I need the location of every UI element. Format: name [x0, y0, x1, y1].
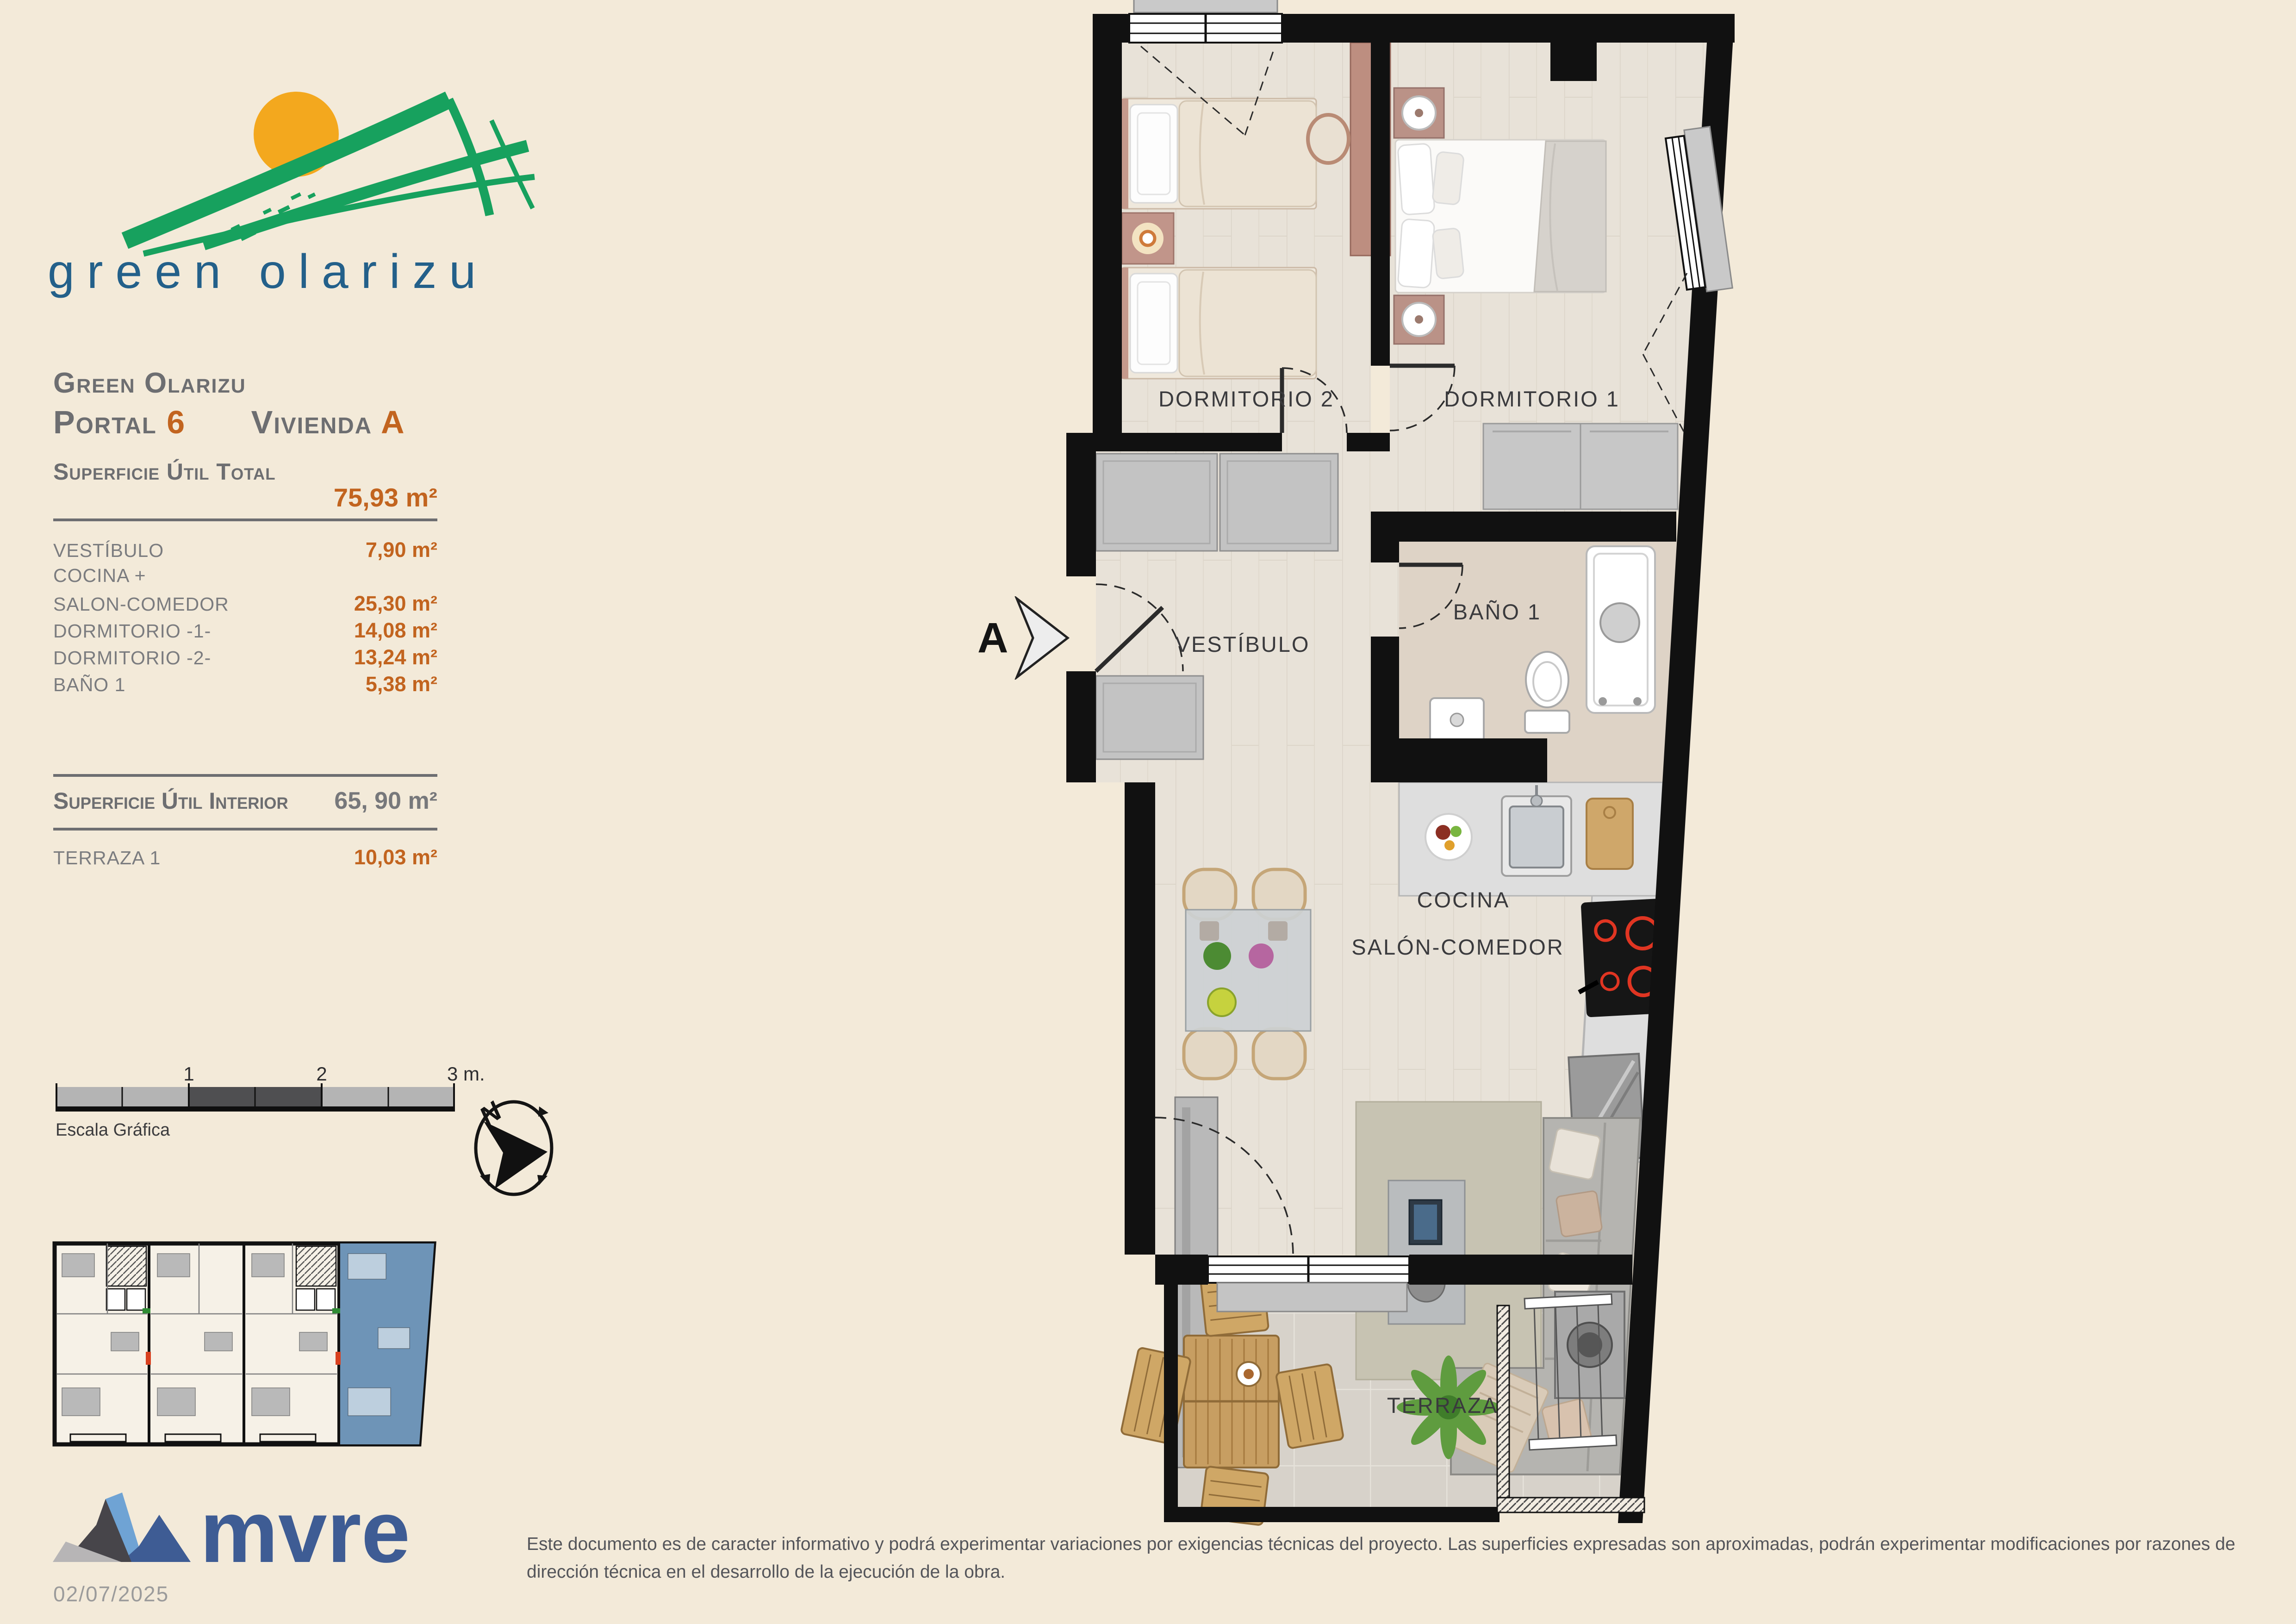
- kitchen-sink: [1502, 785, 1571, 876]
- bed-single-2: [1122, 268, 1316, 379]
- cutting-board: [1587, 799, 1633, 869]
- divider-rule: [53, 518, 437, 521]
- area-row-label: VESTÍBULO: [53, 540, 164, 562]
- area-row: DORMITORIO -1-14,08 m²: [53, 618, 437, 645]
- interior-surface-value: 65, 90 m²: [334, 787, 437, 815]
- area-row-value: 14,08 m²: [354, 618, 437, 643]
- door-mark-icon: [146, 1352, 151, 1365]
- interior-surface-label: Superficie Útil Interior: [53, 787, 288, 814]
- vivienda-label: Vivienda: [251, 404, 372, 440]
- nightstand: [1394, 295, 1444, 344]
- area-row: SALON-COMEDOR25,30 m²: [53, 592, 437, 618]
- hatched-wall: [1497, 1305, 1509, 1509]
- meter-mark-icon: [332, 1308, 340, 1313]
- section-marker-a: A: [977, 596, 1070, 680]
- area-row-label: DORMITORIO -2-: [53, 647, 211, 669]
- portal-vivienda-line: Portal 6 Vivienda A: [53, 404, 405, 441]
- nightstand: [1122, 213, 1174, 264]
- divider-rule: [53, 774, 437, 777]
- scale-tick-label-3: 3 m.: [447, 1065, 485, 1085]
- scale-bar-caption: Escala Gráfica: [56, 1120, 170, 1140]
- vivienda-letter: A: [381, 404, 405, 440]
- area-row-value: 13,24 m²: [354, 645, 437, 669]
- mini-building-plan: [52, 1235, 443, 1450]
- terrace-surface-value: 10,03 m²: [354, 845, 437, 869]
- area-table: VESTÍBULO7,90 m² COCINA + SALON-COMEDOR2…: [53, 538, 437, 699]
- meter-mark-icon: [143, 1308, 150, 1313]
- room-label-dormitorio-1: DORMITORIO 1: [1444, 387, 1620, 411]
- bathroom-sink: [1430, 698, 1484, 744]
- area-row-value: 7,90 m²: [366, 538, 437, 562]
- compass: N: [470, 1093, 558, 1199]
- stair-core-icon: [296, 1246, 336, 1286]
- desk-chair: [1308, 115, 1349, 163]
- window-dormitorio-2: [1129, 0, 1282, 43]
- stair-core-icon: [106, 1246, 146, 1286]
- brand-wordmark: green olarizu: [48, 244, 488, 300]
- area-row-label: DORMITORIO -1-: [53, 620, 211, 642]
- scale-tick-label-1: 1: [183, 1065, 194, 1085]
- section-marker-letter: A: [977, 614, 1008, 662]
- mvre-logo: mvre: [52, 1492, 413, 1575]
- project-title: Green Olarizu: [53, 367, 246, 400]
- wardrobe: [1483, 424, 1678, 509]
- area-row-value: 5,38 m²: [366, 672, 437, 696]
- wardrobe: [1096, 454, 1338, 551]
- brochure-page: green olarizu Green Olarizu Portal 6 Viv…: [0, 0, 2296, 1624]
- brand-logo-art: [97, 56, 551, 259]
- portal-number: 6: [167, 404, 186, 440]
- hatched-wall: [1497, 1498, 1644, 1512]
- shoe-cabinet: [1096, 676, 1203, 759]
- fruit-plate: [1425, 814, 1472, 860]
- bed-double: [1395, 140, 1606, 293]
- portal-label: Portal: [53, 404, 157, 440]
- terrace-sliding-door: [1208, 1256, 1409, 1312]
- pillow: [1556, 1191, 1603, 1237]
- area-row: DORMITORIO -2-13,24 m²: [53, 645, 437, 672]
- room-label-terraza: TERRAZA: [1387, 1393, 1498, 1418]
- scale-bar: 1 2 3 m.: [55, 1065, 513, 1125]
- brand-name: mvre: [200, 1492, 410, 1575]
- terrace-surface-row: TERRAZA 1 10,03 m²: [53, 845, 437, 869]
- compass-spike-icon: [538, 1106, 548, 1117]
- bathtub: [1587, 546, 1655, 713]
- room-label-bano: BAÑO 1: [1453, 600, 1541, 624]
- door-mark-icon: [336, 1352, 341, 1365]
- area-row-value: 25,30 m²: [354, 592, 437, 616]
- mountain-icon: [53, 1493, 191, 1562]
- section-arrow-icon: [1014, 596, 1070, 680]
- surface-total-value: 75,93 m²: [53, 482, 437, 512]
- terrace-surface-label: TERRAZA 1: [53, 847, 161, 869]
- scale-tick-label-2: 2: [316, 1065, 327, 1085]
- compass-spike-icon: [480, 1174, 490, 1186]
- toilet: [1525, 652, 1569, 733]
- area-row: VESTÍBULO7,90 m²: [53, 538, 437, 565]
- room-label-cocina: COCINA: [1417, 887, 1510, 912]
- area-row: COCINA +: [53, 565, 437, 592]
- terrace-table: [1184, 1336, 1279, 1468]
- washing-machine: [1555, 1292, 1624, 1398]
- print-date: 02/07/2025: [53, 1581, 169, 1606]
- divider-rule: [53, 828, 437, 831]
- room-label-vestibulo: VESTÍBULO: [1176, 632, 1310, 656]
- area-row-label: BAÑO 1: [53, 674, 125, 696]
- area-row-label: COCINA +: [53, 565, 146, 587]
- interior-surface-row: Superficie Útil Interior 65, 90 m²: [53, 787, 437, 815]
- area-row: BAÑO 15,38 m²: [53, 672, 437, 699]
- nightstand: [1394, 88, 1444, 138]
- compass-needle-icon: [484, 1121, 548, 1189]
- pillow: [1549, 1128, 1601, 1180]
- area-row-label: SALON-COMEDOR: [53, 593, 229, 615]
- dining-table: [1186, 910, 1311, 1031]
- room-label-dormitorio-2: DORMITORIO 2: [1158, 387, 1334, 411]
- floor-plan: DORMITORIO 2 DORMITORIO 1 VESTÍBULO BAÑO…: [1064, 0, 1740, 1542]
- room-label-salon-comedor: SALÓN-COMEDOR: [1351, 935, 1564, 959]
- bed-single-1: [1122, 99, 1316, 209]
- surface-total-label: Superficie Útil Total: [53, 458, 276, 485]
